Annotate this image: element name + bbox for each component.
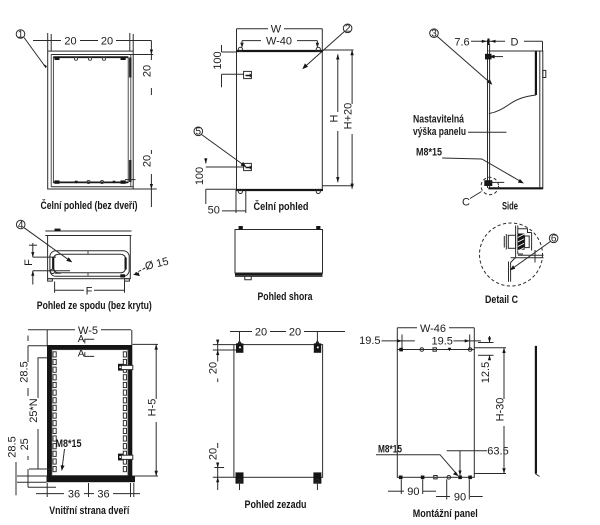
svg-text:H-5: H-5 (147, 399, 159, 417)
svg-text:H: H (328, 114, 340, 122)
svg-text:36: 36 (68, 489, 80, 501)
svg-text:Čelní pohled: Čelní pohled (254, 200, 309, 213)
svg-text:63.5: 63.5 (487, 446, 508, 458)
svg-text:19.5: 19.5 (359, 335, 380, 347)
svg-text:výška panelu: výška panelu (413, 126, 466, 138)
svg-text:25: 25 (19, 438, 31, 450)
svg-text:25*N: 25*N (28, 398, 40, 423)
svg-text:Pohled zezadu: Pohled zezadu (245, 499, 307, 511)
svg-text:20: 20 (255, 327, 267, 339)
svg-text:20: 20 (101, 36, 113, 48)
svg-text:28.5: 28.5 (6, 436, 18, 457)
svg-text:50: 50 (208, 205, 220, 217)
svg-text:C: C (462, 197, 470, 209)
svg-text:20: 20 (64, 36, 76, 48)
svg-text:D: D (511, 36, 519, 48)
svg-text:20: 20 (289, 327, 301, 339)
svg-text:28.5: 28.5 (18, 361, 30, 382)
svg-text:6: 6 (551, 234, 557, 245)
svg-text:2: 2 (345, 24, 351, 35)
svg-text:M8*15: M8*15 (416, 147, 442, 159)
svg-text:12.5: 12.5 (480, 362, 492, 383)
svg-text:4: 4 (18, 220, 24, 231)
svg-text:20: 20 (142, 155, 154, 167)
svg-text:1: 1 (18, 29, 24, 40)
svg-text:90: 90 (454, 492, 466, 504)
svg-text:Čelní pohled (bez dveří): Čelní pohled (bez dveří) (41, 199, 138, 212)
svg-text:5: 5 (196, 127, 202, 138)
svg-text:Side: Side (502, 201, 518, 213)
svg-text:Pohled ze spodu (bez krytu): Pohled ze spodu (bez krytu) (37, 300, 152, 312)
svg-text:M8*15: M8*15 (56, 438, 82, 450)
svg-text:20: 20 (208, 362, 220, 374)
svg-text:36: 36 (97, 489, 109, 501)
svg-text:W-46: W-46 (420, 323, 446, 335)
svg-text:H-30: H-30 (494, 398, 506, 422)
svg-text:3: 3 (431, 29, 437, 40)
svg-text:100: 100 (194, 167, 206, 185)
svg-text:M8*15: M8*15 (378, 444, 402, 456)
svg-text:W: W (271, 24, 282, 36)
svg-text:A: A (78, 334, 85, 345)
svg-text:19.5: 19.5 (431, 335, 452, 347)
svg-text:7.6: 7.6 (454, 36, 469, 48)
svg-text:20: 20 (142, 65, 154, 77)
svg-text:W-40: W-40 (266, 36, 292, 48)
svg-text:Pohled shora: Pohled shora (258, 291, 314, 303)
svg-text:Vnitřní strana dveří: Vnitřní strana dveří (49, 505, 130, 517)
svg-text:20: 20 (208, 448, 220, 460)
svg-text:H+20: H+20 (343, 103, 355, 130)
svg-text:F: F (23, 259, 35, 266)
svg-text:Detail C: Detail C (485, 294, 518, 306)
svg-text:Nastavitelná: Nastavitelná (413, 114, 465, 126)
svg-text:F: F (86, 285, 93, 297)
svg-text:Montážní panel: Montážní panel (413, 508, 478, 520)
svg-text:90: 90 (407, 486, 419, 498)
svg-text:100: 100 (212, 51, 224, 69)
